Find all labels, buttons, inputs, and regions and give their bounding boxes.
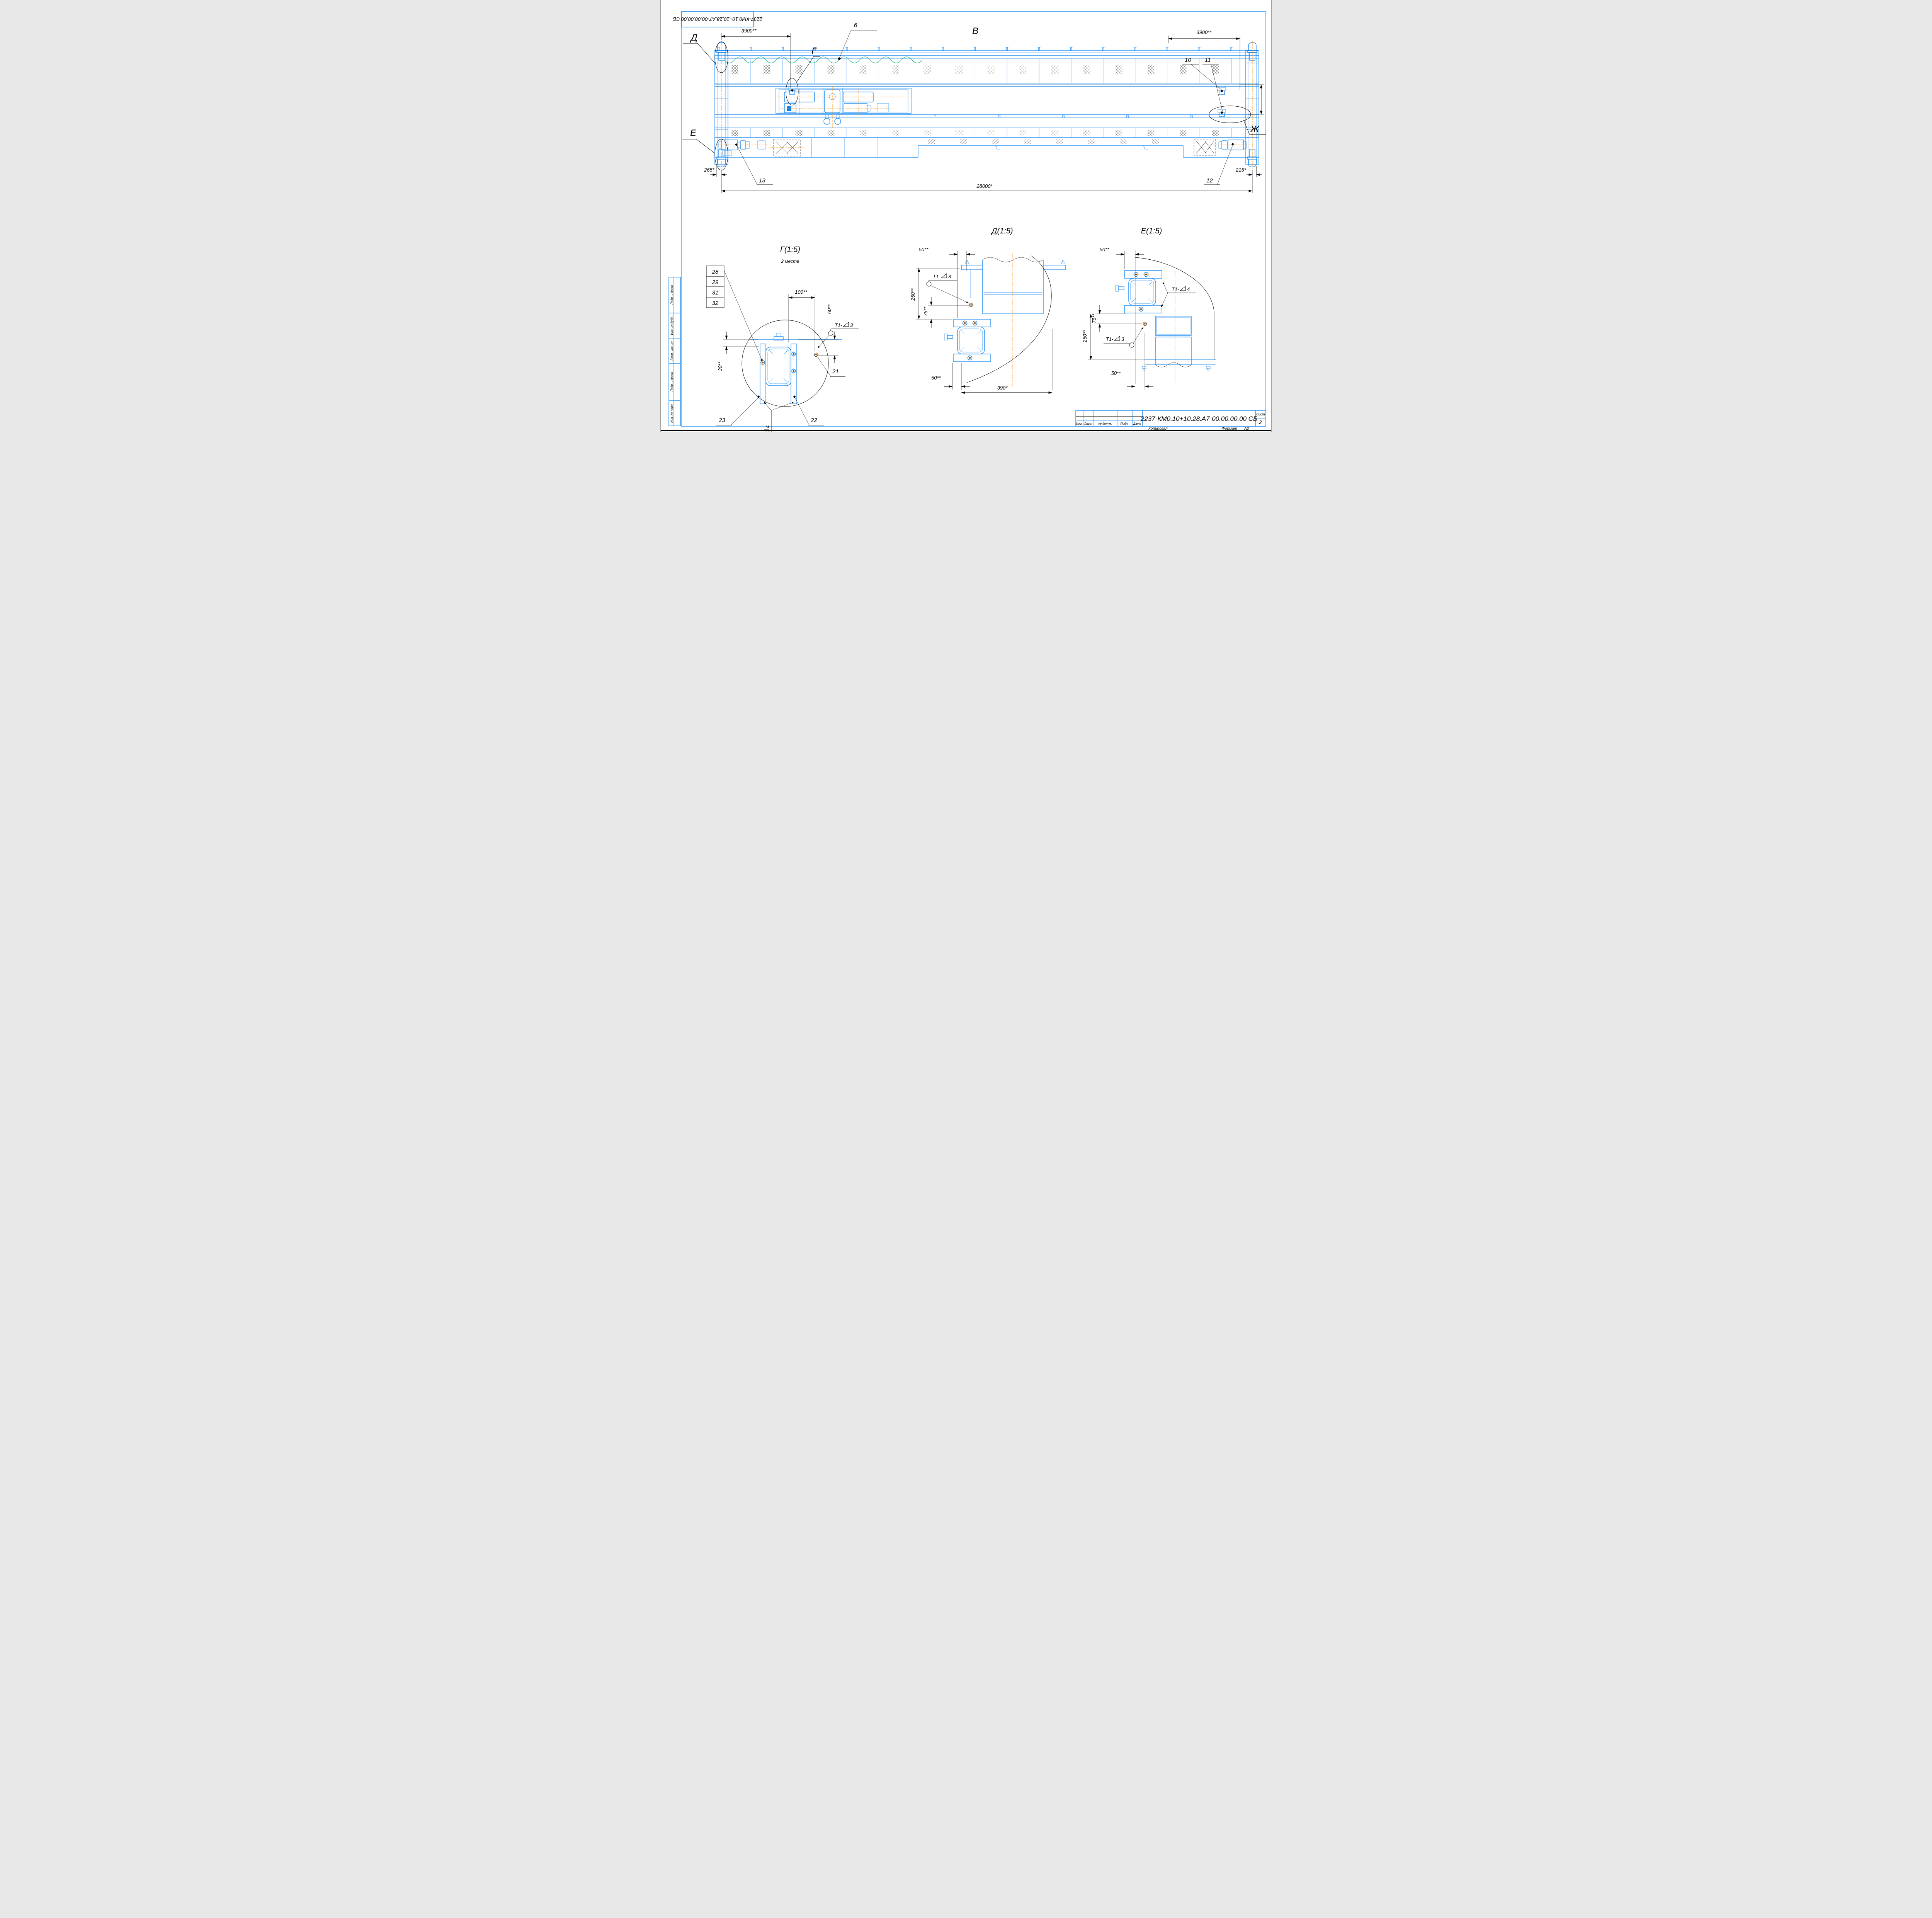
weld-ref-t1-4: Т1- 4	[1161, 282, 1196, 307]
section-label-e: Е	[690, 128, 697, 138]
svg-text:Т1-: Т1-	[835, 322, 842, 328]
dim-3900-left: 3900**	[741, 28, 757, 34]
section-label-zh: Ж	[1250, 124, 1260, 134]
wheel-block-upper	[1218, 87, 1226, 95]
dim-390: 390*	[997, 385, 1008, 391]
stamp-box: 2237-КМ0,10+10,28.А7-00.00.00,00 СБ	[673, 12, 763, 27]
runway-rail	[983, 257, 1043, 314]
dim-215: 215*	[1235, 167, 1247, 173]
callout-6: 6	[854, 22, 857, 29]
detail-g-title: Г(1:5)	[780, 245, 800, 254]
dim-50-top: 50**	[1100, 247, 1110, 252]
end-truck-right	[1246, 41, 1259, 170]
svg-text:4: 4	[765, 425, 770, 428]
stack-item: 28	[712, 269, 719, 275]
side-column: Подп. и дата Инв. № дубл. Взам. инв. № П…	[669, 277, 680, 426]
tb-col: Подп.	[1120, 422, 1128, 425]
bridge-drive-right	[1194, 139, 1252, 155]
side-label: Подп. и дата	[670, 285, 674, 305]
side-label: Подп. и дата	[670, 372, 674, 391]
svg-text:Т1-: Т1-	[1172, 286, 1179, 292]
dim-28000: 28000*	[976, 183, 993, 189]
tb-format-value: А2	[1244, 427, 1249, 431]
callout-13: 13	[759, 177, 765, 184]
resistor-box	[770, 139, 804, 156]
view-label-v: В	[972, 26, 978, 36]
rail-clamp-d	[944, 319, 991, 362]
stamp-doc-number: 2237-КМ0,10+10,28.А7-00.00.00,00 СБ	[673, 16, 763, 22]
tb-col: Дата	[1133, 422, 1141, 425]
stack-item: 29	[712, 279, 719, 286]
hook-block	[835, 118, 841, 124]
dim-50-top: 50**	[919, 247, 929, 252]
tb-col: Лист	[1084, 422, 1092, 425]
callout-22: 22	[810, 417, 817, 424]
detail-d-title: Д(1:5)	[991, 227, 1013, 235]
girder-section	[1142, 316, 1216, 370]
svg-text:3: 3	[1121, 336, 1124, 342]
stack-item: 32	[712, 300, 719, 306]
callout-10: 10	[1185, 57, 1191, 63]
dim-100: 100**	[795, 289, 808, 295]
dim-3900-right: 3900**	[1196, 29, 1212, 35]
rail-clamp-detail	[749, 333, 842, 404]
cable-clip	[1143, 146, 1148, 149]
callout-12: 12	[1206, 177, 1213, 184]
dim-250: 250**	[1082, 330, 1088, 343]
rail-clamp-g	[786, 78, 798, 105]
drawing-sheet: 2237-КМ0,10+10,28.А7-00.00.00,00 СБ Подп…	[661, 0, 1271, 432]
dim-60: 60**	[827, 304, 832, 314]
side-label: Взам. инв. №	[670, 341, 674, 361]
dim-30: 30**	[717, 361, 723, 371]
detail-e-title: Е(1:5)	[1141, 227, 1162, 235]
tb-col: № докум.	[1098, 422, 1112, 425]
crane-assembly-drawing: 2237-КМ0,10+10,28.А7-00.00.00,00 СБ Подп…	[661, 0, 1271, 432]
weld-ref-t1-3: Т1- 3	[1104, 327, 1143, 347]
weld-ref-t1-3: Т1- 3	[927, 274, 974, 308]
rail-clamp-e	[1116, 271, 1162, 313]
dim-75: 75**	[1091, 313, 1097, 323]
section-label-d: Д	[690, 32, 697, 43]
main-annotations: Д Е Г В Ж 3900** 3900** 10 11 6	[682, 22, 1266, 193]
title-block: Изм. Лист № докум. Подп. Дата 2237-КМ0.1…	[1076, 410, 1266, 431]
dim-50-bot: 50**	[931, 375, 941, 381]
tb-col: Изм.	[1076, 422, 1082, 425]
side-label: Инв. № дубл.	[670, 316, 674, 335]
detail-e: Е(1:5) Т1- 4 50**	[1082, 227, 1216, 390]
detail-g: Г(1:5) 2 места 28 29 31 32 100** 60** 30…	[706, 245, 859, 432]
trolley	[776, 86, 911, 129]
tb-format-label: Формат	[1222, 427, 1237, 431]
stack-item: 31	[712, 289, 719, 296]
svg-text:3: 3	[948, 274, 951, 279]
section-label-g: Г	[811, 46, 817, 56]
cable-clip	[995, 146, 1000, 149]
svg-text:Т1-: Т1-	[1106, 336, 1114, 342]
callout-21: 21	[832, 368, 839, 375]
weld-ref-t1-3: Т1- 3	[813, 322, 859, 358]
callout-stack: 28 29 31 32	[706, 266, 763, 361]
dim-250: 250**	[910, 288, 916, 301]
callout-23: 23	[718, 417, 725, 424]
dim-265: 265*	[704, 167, 715, 173]
svg-text:3: 3	[850, 322, 853, 328]
detail-g-note: 2 места	[781, 259, 799, 264]
tb-doc-number: 2237-КМ0.10+10.28.А7-00.00.00.00 СБ	[1140, 415, 1257, 422]
sheet-frame: 2237-КМ0,10+10,28.А7-00.00.00,00 СБ Подп…	[661, 12, 1271, 431]
main-view: Д Е Г В Ж 3900** 3900** 10 11 6	[682, 22, 1266, 193]
hook-block	[824, 118, 830, 124]
tb-sheet-number: 2	[1259, 419, 1262, 425]
tb-sheet-label: Лист	[1255, 412, 1265, 416]
side-label: Инв. № подл.	[670, 403, 674, 423]
dim-50-bot: 50**	[1111, 370, 1121, 376]
svg-text:4: 4	[1187, 286, 1190, 292]
dim-75: 75**	[923, 306, 929, 317]
svg-text:Т1-: Т1-	[933, 274, 940, 279]
bridge-drive-left	[717, 139, 804, 156]
detail-d: Д(1:5) 50** Т1- 3	[910, 227, 1066, 393]
tb-copied: Копировал	[1148, 427, 1168, 431]
festoon-cable	[724, 57, 922, 63]
callout-11: 11	[1205, 57, 1211, 63]
